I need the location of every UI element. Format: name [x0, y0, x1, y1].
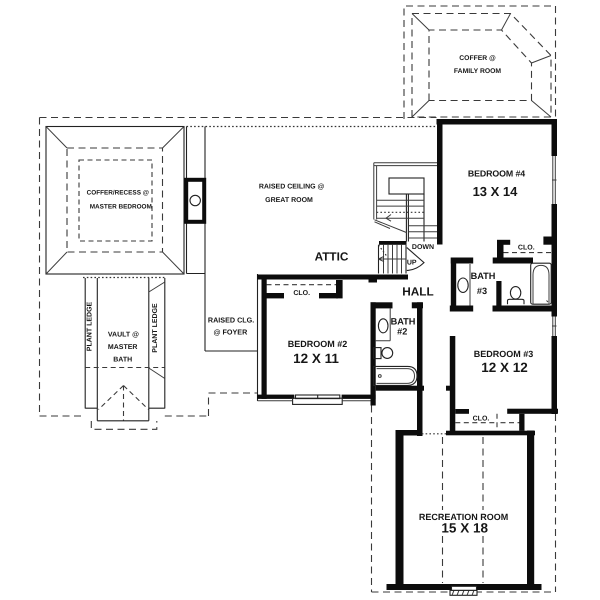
svg-text:15 X 18: 15 X 18: [441, 521, 488, 536]
svg-text:HALL: HALL: [402, 284, 433, 298]
svg-text:#3: #3: [477, 286, 487, 296]
svg-text:RAISED CLG.: RAISED CLG.: [208, 315, 254, 324]
svg-text:CLO.: CLO.: [473, 416, 490, 423]
svg-text:GREAT ROOM: GREAT ROOM: [265, 197, 313, 204]
svg-text:12 X 11: 12 X 11: [293, 351, 339, 366]
svg-text:BEDROOM #4: BEDROOM #4: [468, 169, 525, 179]
svg-text:UP: UP: [407, 259, 417, 266]
svg-text:BATH: BATH: [391, 316, 416, 326]
svg-text:12 X 12: 12 X 12: [481, 360, 528, 375]
svg-text:ATTIC: ATTIC: [315, 249, 349, 263]
svg-text:CLO.: CLO.: [293, 290, 310, 297]
svg-text:BATH: BATH: [113, 357, 132, 364]
svg-text:VAULT @: VAULT @: [108, 332, 139, 339]
svg-text:@ FOYER: @ FOYER: [214, 327, 249, 336]
svg-text:13 X 14: 13 X 14: [473, 184, 519, 199]
svg-text:BEDROOM #2: BEDROOM #2: [288, 339, 348, 349]
svg-text:DOWN: DOWN: [412, 244, 434, 251]
svg-text:#2: #2: [397, 326, 407, 336]
svg-text:MASTER BEDROOM: MASTER BEDROOM: [90, 203, 152, 210]
svg-text:FAMILY ROOM: FAMILY ROOM: [454, 68, 502, 75]
svg-text:CLO.: CLO.: [518, 244, 535, 251]
svg-text:COFFER/RECESS @: COFFER/RECESS @: [87, 190, 149, 197]
svg-text:COFFER @: COFFER @: [459, 55, 496, 62]
svg-text:RAISED CEILING @: RAISED CEILING @: [259, 184, 325, 191]
svg-text:BATH: BATH: [471, 271, 496, 281]
svg-text:MASTER: MASTER: [108, 344, 138, 351]
svg-text:PLANT LEDGE: PLANT LEDGE: [152, 303, 159, 353]
svg-text:PLANT LEDGE: PLANT LEDGE: [87, 301, 94, 351]
svg-text:BEDROOM #3: BEDROOM #3: [474, 349, 534, 359]
